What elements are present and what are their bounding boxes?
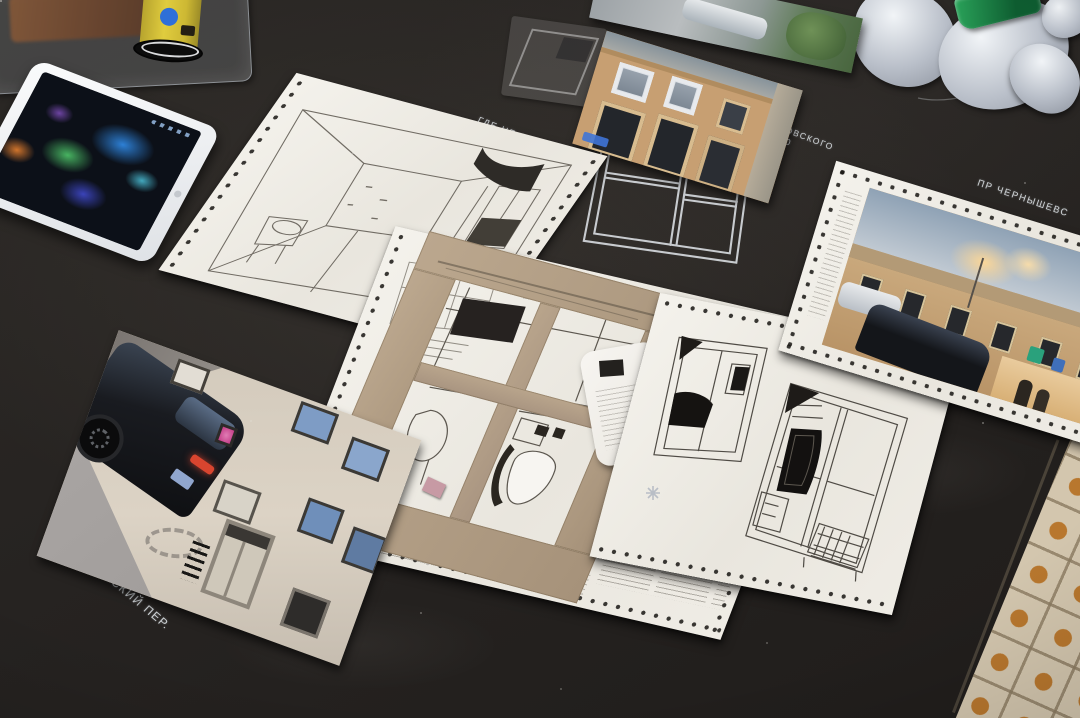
person-silhouette xyxy=(1032,388,1051,413)
window-upper xyxy=(611,62,655,103)
person-silhouette xyxy=(1013,378,1034,407)
film-dark-pane xyxy=(556,37,594,62)
label-text-block xyxy=(180,25,195,36)
screen-toolbar-dots xyxy=(151,120,194,139)
scene: ГДЕ НЕ ГОРИТ СВЕТ ЧАЙКОВСКОГО 4/10 ПР ЧЕ… xyxy=(0,0,1080,718)
window-mid xyxy=(213,479,262,525)
car-roof xyxy=(680,0,769,41)
window-upper xyxy=(663,76,703,116)
window-blue xyxy=(341,437,390,483)
note-dark-sketch xyxy=(599,359,624,377)
film-window-outline xyxy=(509,29,600,96)
metal-jack xyxy=(644,484,662,502)
window-blue xyxy=(297,497,345,544)
window-dark-lower xyxy=(280,587,331,638)
label-blue-dot xyxy=(159,7,179,27)
spray-can xyxy=(134,0,208,65)
entrance-door xyxy=(200,519,276,610)
window-blue xyxy=(291,401,340,445)
home-button xyxy=(173,190,183,199)
window-small xyxy=(715,98,751,135)
foil-piece xyxy=(1042,0,1080,38)
dust-specks xyxy=(0,0,2,2)
foliage xyxy=(782,7,850,64)
